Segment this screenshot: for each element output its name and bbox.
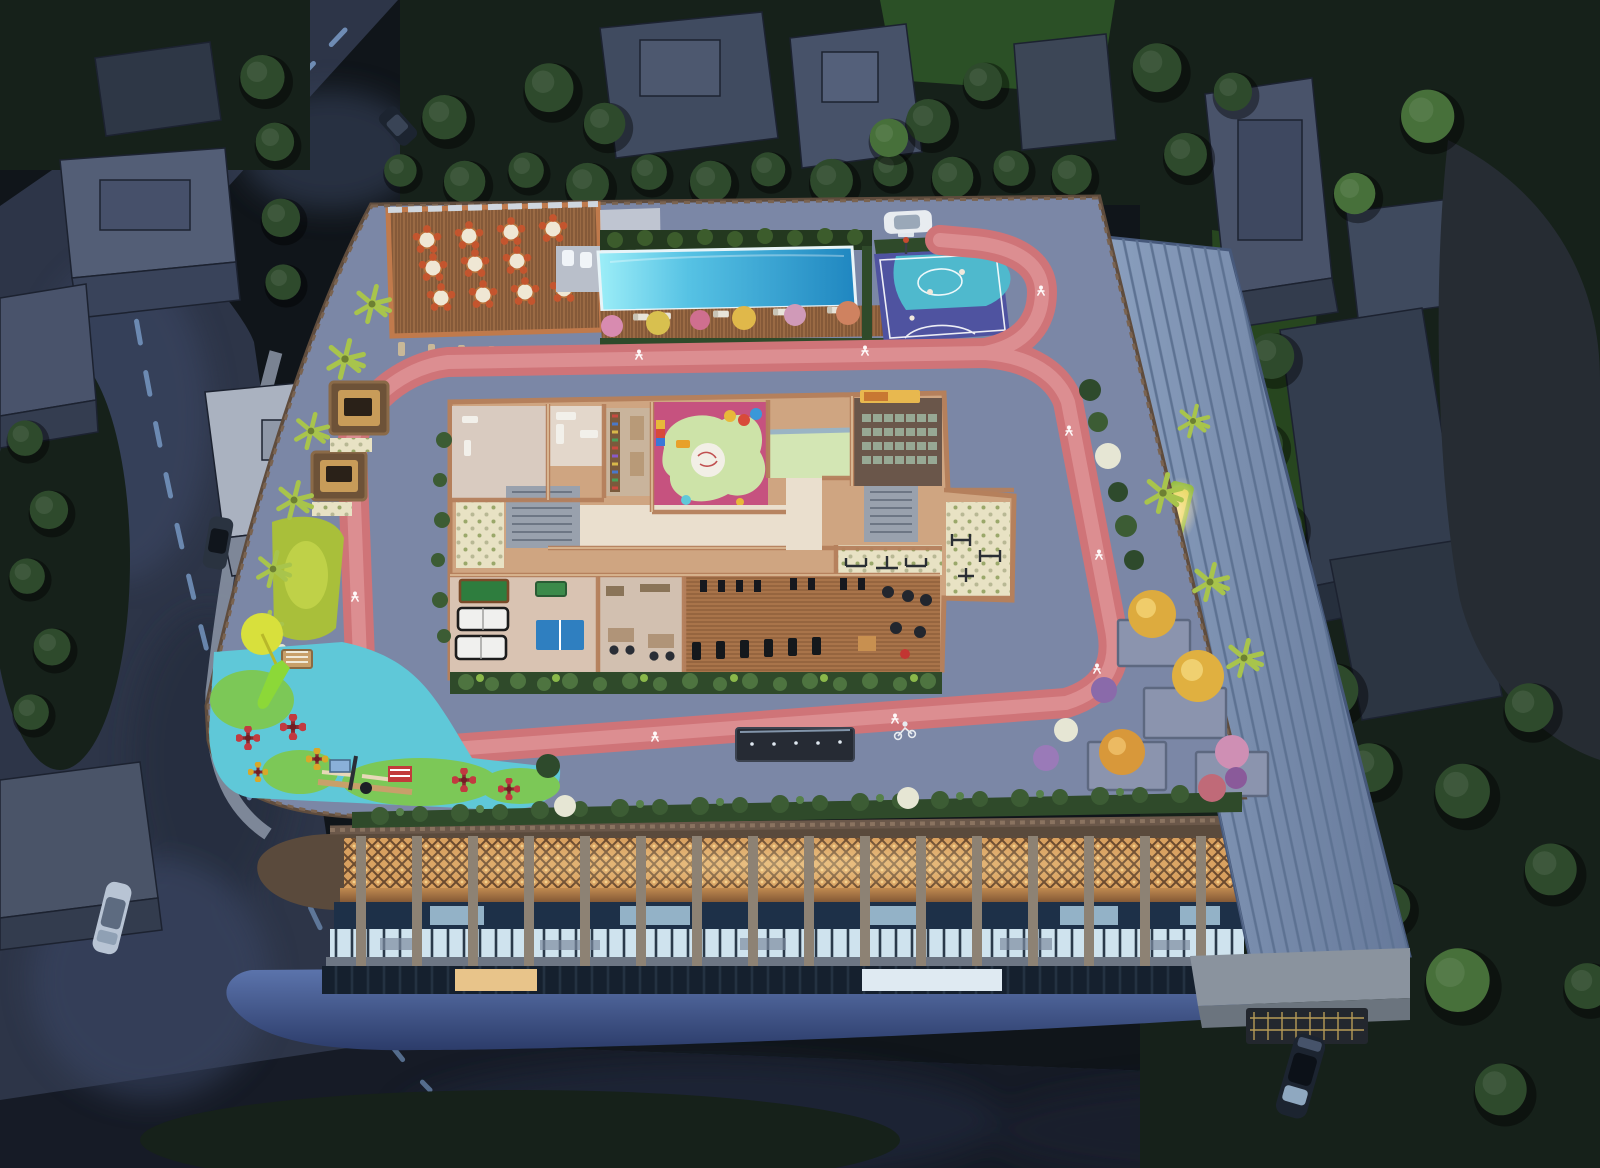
multipurpose-hall	[770, 430, 850, 478]
lattice-glow	[344, 838, 1242, 890]
pergola-swing-2	[312, 452, 366, 500]
swimming-pool-area	[556, 228, 892, 347]
screen-image	[864, 392, 888, 401]
billiards-table	[460, 580, 508, 602]
playground-bush	[536, 754, 560, 778]
water-feature	[736, 728, 854, 761]
plyo-box	[858, 636, 876, 651]
pergola-tile-pad	[330, 438, 372, 452]
scene-canvas	[0, 0, 1600, 1168]
parked-suv	[883, 210, 932, 234]
kids-rug	[691, 443, 725, 477]
glass-floor-2-mullions	[330, 929, 1244, 957]
stair-right	[864, 486, 918, 542]
court-hedge-left	[862, 246, 872, 346]
pool-fixture	[562, 250, 574, 266]
tile-courtyard-east	[946, 502, 1010, 596]
white-flower-cluster	[554, 795, 576, 817]
pergola-swing-1	[330, 382, 388, 434]
hall-glass-wall	[770, 430, 850, 432]
corridor-vertical	[786, 478, 822, 550]
pool-fixture	[580, 252, 592, 268]
purple-flower-cluster	[1225, 767, 1247, 789]
tile-courtyard-west	[456, 502, 504, 568]
stair-left	[506, 486, 580, 548]
medicine-ball	[900, 649, 910, 659]
clubhouse-floorplan	[431, 390, 1014, 694]
pergola-tile-pad	[312, 502, 352, 516]
ground-lit-white	[862, 969, 1002, 991]
pink-flower-cluster	[1198, 774, 1226, 802]
ground-lit-warm	[455, 969, 537, 991]
white-flower-cluster	[897, 787, 919, 809]
aerial-render	[0, 0, 1600, 1168]
foosball-table	[536, 582, 566, 596]
